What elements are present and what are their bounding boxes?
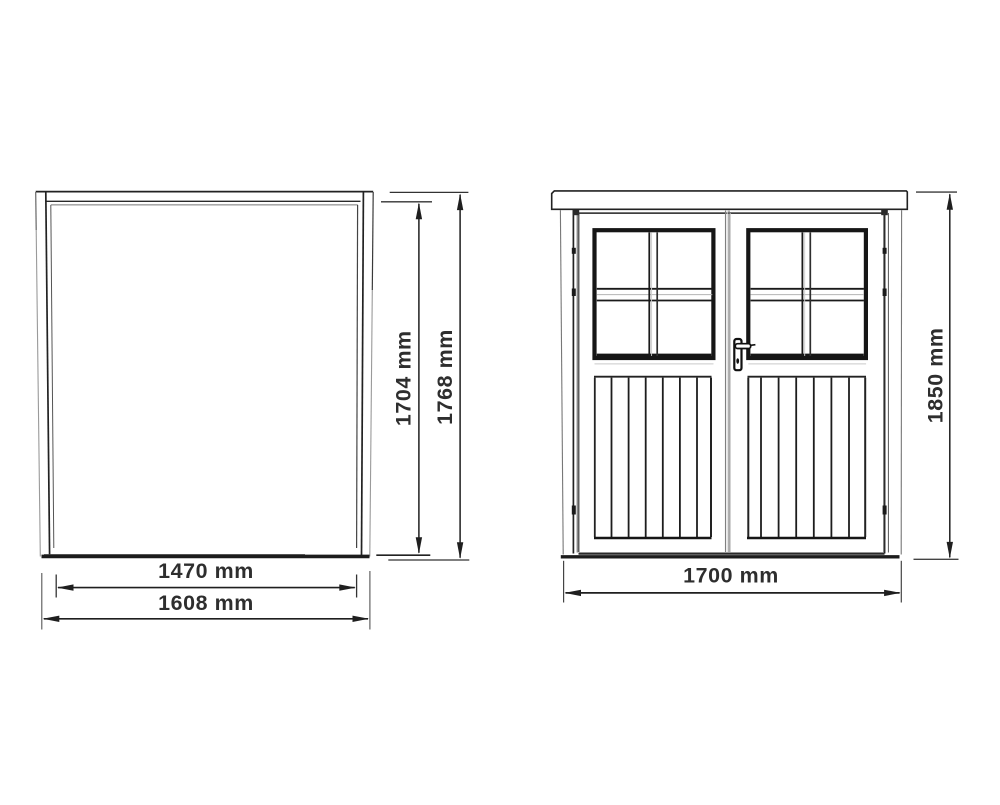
svg-text:1700 mm: 1700 mm: [683, 563, 779, 587]
svg-text:1704 mm: 1704 mm: [391, 330, 415, 426]
svg-text:1608 mm: 1608 mm: [158, 591, 254, 615]
svg-text:1470 mm: 1470 mm: [158, 559, 254, 583]
svg-text:1768 mm: 1768 mm: [433, 329, 457, 425]
svg-text:1850 mm: 1850 mm: [923, 328, 947, 424]
